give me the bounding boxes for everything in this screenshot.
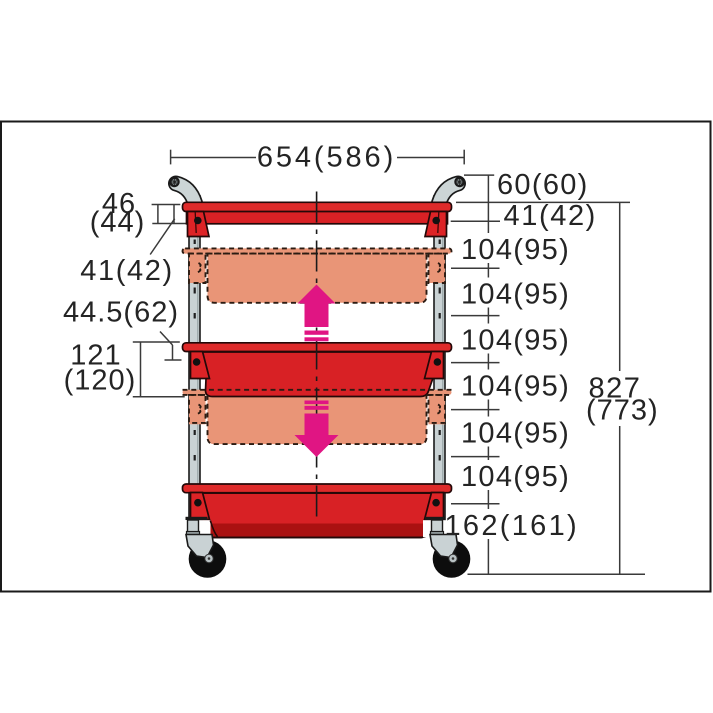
svg-text:(773): (773) [586, 395, 659, 427]
svg-text:104(95): 104(95) [461, 461, 570, 493]
svg-text:104(95): 104(95) [461, 279, 570, 311]
svg-text:104(95): 104(95) [461, 418, 570, 450]
svg-text:104(95): 104(95) [461, 371, 570, 403]
svg-text:44.5(62): 44.5(62) [63, 297, 179, 329]
svg-text:41(42): 41(42) [504, 200, 597, 232]
svg-text:(44): (44) [90, 207, 146, 239]
svg-text:60(60): 60(60) [497, 169, 589, 201]
svg-text:104(95): 104(95) [461, 234, 570, 266]
svg-text:41(42): 41(42) [80, 255, 173, 287]
svg-text:654(586): 654(586) [257, 141, 396, 173]
svg-text:104(95): 104(95) [461, 325, 570, 357]
svg-text:(120): (120) [64, 365, 137, 397]
svg-text:162(161): 162(161) [445, 510, 580, 542]
